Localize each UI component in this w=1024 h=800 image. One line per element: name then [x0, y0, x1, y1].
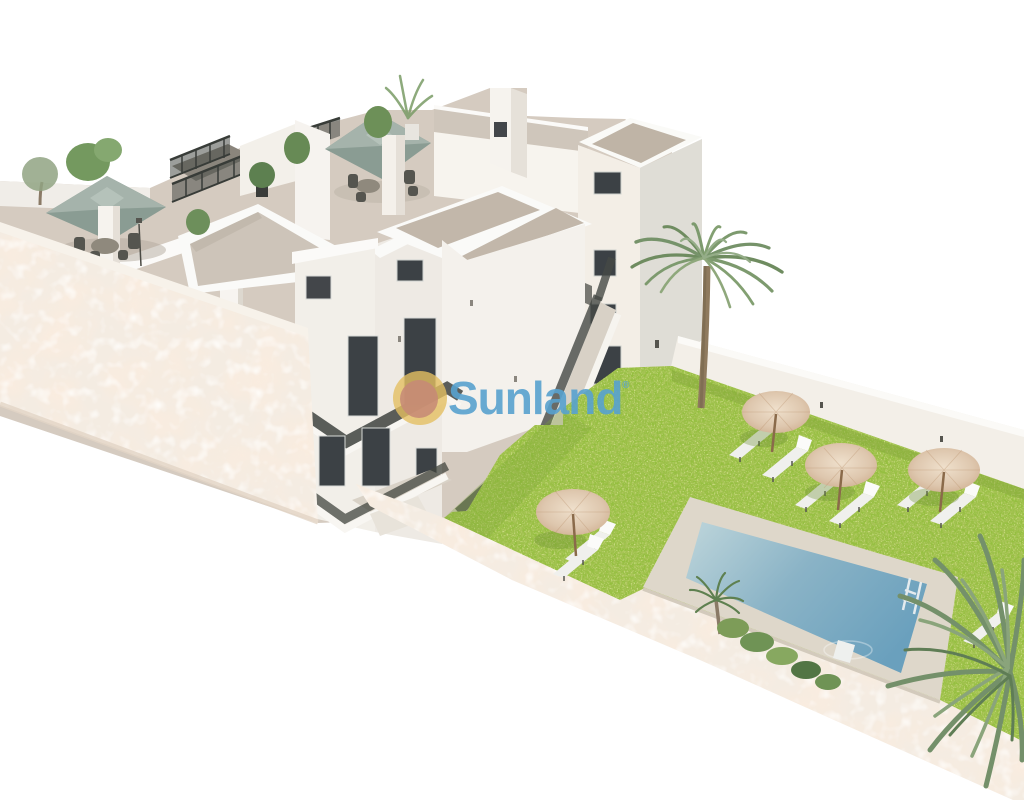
- svg-text:Sunland: Sunland: [448, 372, 622, 424]
- svg-text:®: ®: [622, 380, 630, 391]
